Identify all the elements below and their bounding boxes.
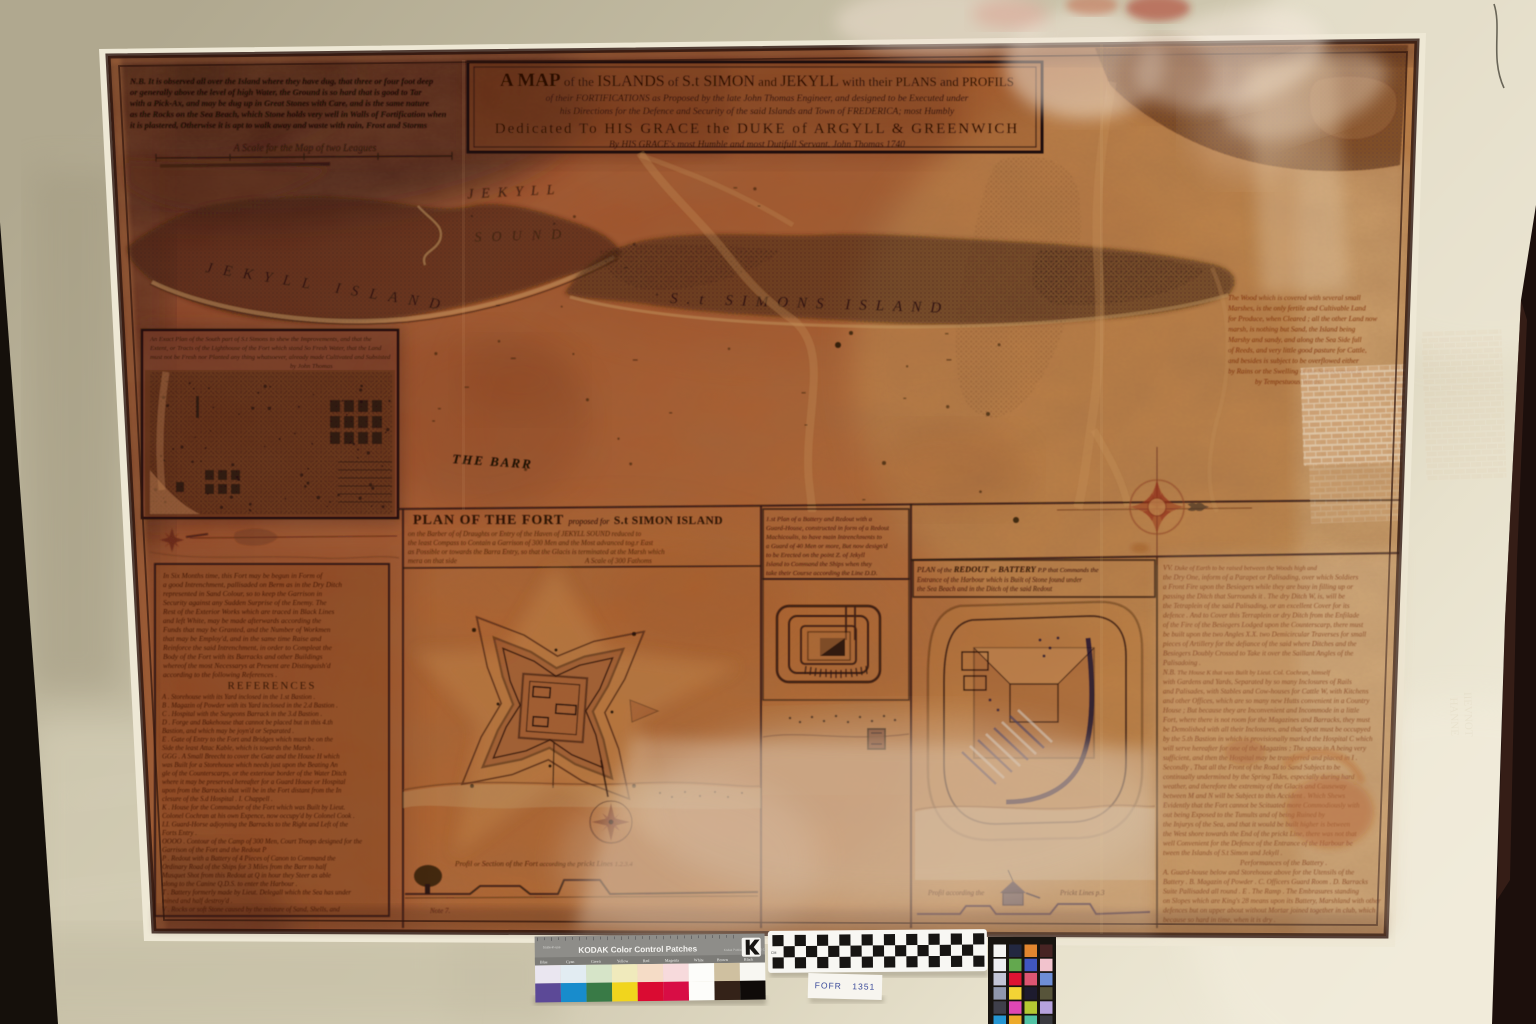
svg-text:Magenta: Magenta	[665, 958, 679, 963]
svg-text:PLAN OF THE FORT proposed for: PLAN OF THE FORT proposed for S.t SIMON …	[413, 513, 723, 528]
svg-text:I.I. Guard-Horse adjoyning the: I.I. Guard-Horse adjoyning the Barracks …	[161, 822, 348, 829]
svg-text:mera on that side: mera on that side	[408, 557, 457, 565]
svg-text:OOOO . Contour of the Camp of: OOOO . Contour of the Camp of 300 Men, C…	[162, 839, 362, 846]
svg-text:represented in Sand Colour, so: represented in Sand Colour, so to keep t…	[163, 589, 323, 598]
svg-text:and left White, may be made af: and left White, may be made afterwards a…	[163, 616, 322, 625]
svg-text:A MAP of the ISLANDS of S.t SI: A MAP of the ISLANDS of S.t SIMON and JE…	[500, 70, 1014, 91]
svg-text:on the Barber of of Draughts o: on the Barber of of Draughts or Entry of…	[408, 530, 642, 538]
svg-text:By HIS GRACE's most Humble and: By HIS GRACE's most Humble and most Duti…	[609, 139, 905, 150]
svg-text:Red: Red	[643, 958, 650, 963]
svg-text:Marshy and sandy, and along th: Marshy and sandy, and along the Sea Side…	[1227, 336, 1362, 344]
svg-text:according to the following Ref: according to the following References .	[163, 670, 277, 679]
svg-text:gle of the Counterscarps, or t: gle of the Counterscarps, or the exterio…	[162, 771, 347, 778]
svg-text:Extent, or Tracts of the Light: Extent, or Tracts of the Lighthouse of t…	[149, 345, 382, 352]
svg-text:as the Rocks on the Sea Beach,: as the Rocks on the Sea Beach, which Sto…	[130, 109, 447, 119]
svg-text:of Reeds, and very little good: of Reeds, and very little good pasture f…	[1228, 347, 1367, 355]
svg-text:White: White	[694, 957, 704, 962]
svg-text:of their FORTIFICATIONS as Pro: of their FORTIFICATIONS as Proposed by t…	[546, 93, 969, 104]
svg-text:A Scale for the Map of two Lea: A Scale for the Map of two Leagues	[233, 143, 377, 154]
svg-text:Machicoulis, to have main Intr: Machicoulis, to have main Intrenchments …	[765, 534, 883, 541]
svg-text:marsh, is nothing but Sand, th: marsh, is nothing but Sand, the Island b…	[1228, 326, 1356, 334]
svg-text:E . Gate of Entry to the Fort: E . Gate of Entry to the Fort and Bridge…	[161, 737, 333, 744]
svg-text:Side the least Attac Kable, wh: Side the least Attac Kable, which is tow…	[162, 745, 314, 752]
svg-text:Marshes, is the only fertile a: Marshes, is the only fertile and Cultiva…	[1227, 305, 1366, 313]
svg-text:the least Compass to Contain a: the least Compass to Contain a Garrison …	[408, 539, 654, 547]
svg-text:1.st Plan of a Battery and Red: 1.st Plan of a Battery and Redout with a	[766, 516, 873, 523]
svg-text:with a Pick-Ax, and may be dug: with a Pick-Ax, and may be dug up in Gre…	[130, 98, 429, 108]
svg-text:Body of the Fort with its Barr: Body of the Fort with its Barracks and o…	[163, 652, 323, 661]
svg-text:KODAK Color Control Patches: KODAK Color Control Patches	[578, 944, 697, 955]
svg-text:and besides is subject to be o: and besides is subject to be overflowed …	[1228, 357, 1359, 365]
svg-text:the Sea Beach and in the Ditch: the Sea Beach and in the Ditch of the sa…	[917, 586, 1053, 593]
svg-text:Green: Green	[591, 959, 601, 964]
svg-text:a Guard of 40 Men or more, But: a Guard of 40 Men or more, But now desig…	[766, 543, 888, 550]
svg-text:Reinforce the said Intrenchmen: Reinforce the said Intrenchment, in orde…	[162, 643, 333, 652]
svg-text:A . Storehouse with its Yard i: A . Storehouse with its Yard inclosed in…	[161, 694, 315, 701]
svg-text:Brown: Brown	[717, 957, 728, 962]
svg-text:whereof the most Necessarys at: whereof the most Necessarys at Present a…	[163, 661, 331, 670]
svg-text:Ordinary Road of the Ships for: Ordinary Road of the Ships for 3 Miles f…	[162, 864, 327, 871]
svg-text:Yellow: Yellow	[617, 958, 629, 963]
svg-text:Island to Command the Ships wh: Island to Command the Ships when they	[765, 561, 872, 568]
svg-text:T . Battery formerly made by L: T . Battery formerly made by Lieut. Dele…	[162, 890, 351, 897]
svg-text:where it may be preserved here: where it may be preserved hereafter for …	[162, 779, 346, 786]
svg-text:along to the Canine Q.D.S. to: along to the Canine Q.D.S. to enter the …	[162, 881, 298, 888]
svg-text:B . Magazin of Powder with its: B . Magazin of Powder with its Yard incl…	[162, 703, 338, 710]
svg-text:Black: Black	[744, 957, 753, 962]
svg-text:D . Forge and Bakehouse that c: D . Forge and Bakehouse that cannot be p…	[161, 720, 333, 727]
svg-text:Colonel Cochran at his own Exp: Colonel Cochran at his own Expence, now …	[162, 813, 355, 820]
svg-text:Forts Entry .: Forts Entry .	[161, 830, 197, 837]
svg-text:Entrance of the Harbour which: Entrance of the Harbour which is Built o…	[916, 577, 1082, 584]
svg-text:Scale-in-use: Scale-in-use	[543, 945, 561, 949]
svg-text:to be Erected on the point Z.: to be Erected on the point Z. of Jekyll	[766, 552, 865, 559]
svg-text:CM: CM	[771, 951, 777, 955]
svg-text:take their Course according th: take their Course according the Line D.D…	[766, 570, 878, 577]
svg-text:The Wood which is covered with: The Wood which is covered with several s…	[1228, 294, 1361, 302]
svg-text:his Directions for the Defence: his Directions for the Defence and Secur…	[560, 106, 955, 117]
svg-text:must not be Fresh nor Planted: must not be Fresh nor Planted any thing …	[150, 354, 391, 361]
svg-text:Blue: Blue	[540, 959, 548, 964]
svg-text:In Six Months time, this Fort: In Six Months time, this Fort may be beg…	[162, 571, 323, 580]
svg-text:Bastion, and which may be joyn: Bastion, and which may be joyn'd or Sepa…	[162, 728, 294, 735]
svg-text:Funds that may be Granted, and: Funds that may be Granted, and the Numbe…	[162, 625, 331, 634]
svg-text:K . House for the Commander of: K . House for the Commander of the Fort …	[161, 805, 346, 812]
svg-text:was Built for a Storehouse whi: was Built for a Storehouse which needs j…	[162, 762, 338, 769]
svg-text:HANNE: HANNE	[1447, 697, 1460, 736]
svg-text:or generally above the level o: or generally above the level of high Wat…	[130, 87, 422, 97]
svg-text:upon from the Barracks that wi: upon from the Barracks that will be in t…	[162, 788, 342, 795]
svg-text:Guard-House, constructed in fo: Guard-House, constructed in form of a Re…	[766, 525, 889, 532]
svg-text:REFERENCES: REFERENCES	[227, 680, 316, 692]
svg-text:GGG . A Small Breecht to cover: GGG . A Small Breecht to cover the Gate …	[162, 754, 340, 761]
svg-text:Musquet Shot from this Redout: Musquet Shot from this Redout at Q in ho…	[161, 873, 331, 880]
svg-text:C . Hospital with the Surgeons: C . Hospital with the Surgeons Barrack i…	[162, 711, 323, 718]
svg-text:that may be Employ'd, and in t: that may be Employ'd, and in the same ti…	[163, 634, 322, 643]
svg-text:clesure of the S.d Hospital .: clesure of the S.d Hospital . I. Chappel…	[162, 796, 273, 803]
svg-text:P . Redout with a Battery of 4: P . Redout with a Battery of 4 Pieces of…	[161, 856, 336, 863]
svg-text:Dedicated To HIS GRACE the DUK: Dedicated To HIS GRACE the DUKE of ARGYL…	[495, 121, 1019, 137]
svg-text:IIEVNOT: IIEVNOT	[1461, 692, 1475, 737]
svg-text:An Exact Plan of the South par: An Exact Plan of the South part of S.t S…	[149, 336, 372, 343]
svg-text:Security against any Sudden Su: Security against any Sudden Surprise of …	[163, 598, 327, 607]
svg-text:as Possible or towards the Bar: as Possible or towards the Barra Entry, …	[408, 548, 665, 556]
svg-text:Garrison of the Fort and the R: Garrison of the Fort and the Redout P	[162, 847, 266, 854]
svg-text:by John Thomas: by John Thomas	[290, 363, 333, 370]
svg-text:FOFR 1351: FOFR 1351	[815, 980, 876, 992]
svg-text:it is plastered, Otherwise it: it is plastered, Otherwise it is apt to …	[130, 120, 428, 130]
svg-text:Cyan: Cyan	[566, 959, 575, 964]
svg-text:a good Intrenchment, pallisade: a good Intrenchment, pallisaded on Berm …	[163, 580, 342, 589]
svg-text:for Produce, when Cleared ; al: for Produce, when Cleared ; all the othe…	[1228, 315, 1377, 323]
svg-text:mined and half destroy'd .: mined and half destroy'd .	[162, 898, 233, 905]
svg-text:Rest of the Exterior Works whi: Rest of the Exterior Works which are tra…	[162, 607, 334, 616]
svg-text:A Scale of 300 Fathoms: A Scale of 300 Fathoms	[584, 557, 652, 565]
svg-text:N.B. It is observed all over t: N.B. It is observed all over the Island …	[129, 76, 433, 86]
